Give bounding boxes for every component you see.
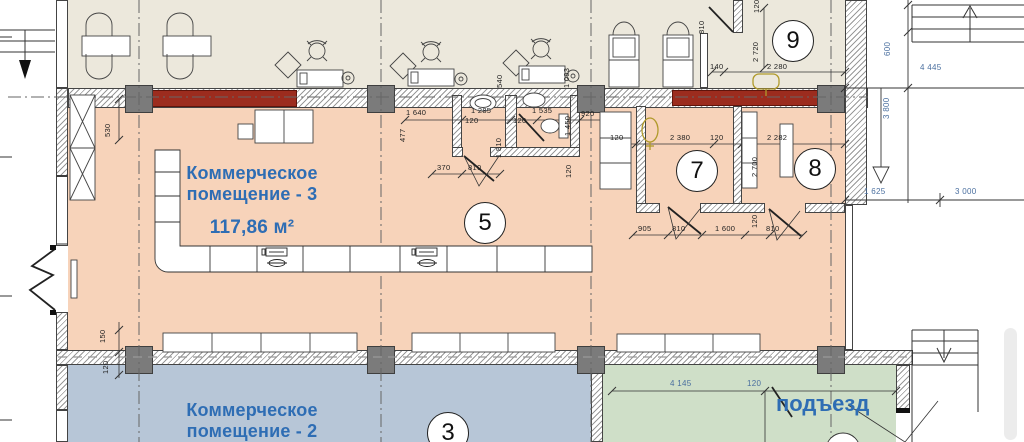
dimension-label: 120 xyxy=(751,215,759,228)
wall-left-3 xyxy=(56,365,68,410)
dimension-label: 120 xyxy=(710,134,723,142)
stairs-top-right xyxy=(912,5,1024,42)
scrollbar[interactable] xyxy=(1004,328,1017,440)
load-bearing-wall-right xyxy=(672,90,818,106)
room-number-9: 9 xyxy=(772,20,814,62)
entrance-label: подъезд xyxy=(776,391,869,417)
load-bearing-wall-left xyxy=(152,90,297,107)
dimension-label: 140 xyxy=(710,63,723,71)
dimension-label: 1 810 xyxy=(495,138,503,158)
room2-name-line2: помещение - 2 xyxy=(162,421,342,442)
dimension-label: 2 380 xyxy=(670,134,690,142)
room7-8-divider xyxy=(733,106,742,213)
column xyxy=(125,85,153,113)
dimension-label: 120 xyxy=(102,361,110,374)
room9-wall-stub xyxy=(733,0,743,33)
room2-label: Коммерческое помещение - 2 xyxy=(162,400,342,442)
office-area-floor xyxy=(68,0,845,90)
wall-bottom xyxy=(56,350,913,365)
dimension-label: 120 xyxy=(610,134,623,142)
dimension-label: 600 xyxy=(884,42,892,56)
wall-left-window xyxy=(56,176,68,246)
dimension-label: 4 445 xyxy=(920,64,942,72)
column xyxy=(817,85,845,113)
dimension-label: 2 280 xyxy=(767,63,787,71)
dimension-label: 1 640 xyxy=(406,109,426,117)
room3-name-line2: помещение - 3 xyxy=(162,184,342,205)
column xyxy=(817,346,845,374)
room7-8-wall-bottom-b xyxy=(700,203,765,213)
stairs-top-left xyxy=(0,30,55,79)
dimension-label: 810 xyxy=(698,21,706,34)
dimension-label: 1 285 xyxy=(471,107,491,115)
wall-left-1 xyxy=(56,88,68,176)
dimension-lines-right xyxy=(845,0,1024,207)
column xyxy=(367,346,395,374)
dimension-label: 3 800 xyxy=(883,97,891,119)
room7-8-wall-bottom-c xyxy=(805,203,845,213)
floor-plan: Коммерческое помещение - 3 117,86 м² Ком… xyxy=(0,0,1024,442)
dimension-label: 120 xyxy=(513,117,526,125)
column xyxy=(577,346,605,374)
dimension-label: 1 535 xyxy=(532,107,552,115)
room3-name-line1: Коммерческое xyxy=(162,163,342,184)
dimension-label: 370 xyxy=(437,164,450,172)
dimension-label: 2 282 xyxy=(767,134,787,142)
column xyxy=(125,346,153,374)
dimension-label: 150 xyxy=(99,330,107,343)
entrance-wall-right xyxy=(896,365,910,412)
room-number-5: 5 xyxy=(464,202,506,244)
room9-partition xyxy=(700,33,708,88)
dimension-label: 1 450 xyxy=(564,116,572,136)
dimension-label: 2 700 xyxy=(751,157,759,177)
dimension-label: 920 xyxy=(581,110,594,118)
stairs-bottom-right xyxy=(912,330,978,442)
wall-left-4 xyxy=(56,410,68,442)
room3-area: 117,86 м² xyxy=(162,217,342,238)
room-number-8: 8 xyxy=(794,148,836,190)
wall-left-upper xyxy=(56,0,68,88)
dimension-label: 1 600 xyxy=(715,225,735,233)
wall-left-2 xyxy=(56,312,68,350)
dimension-label: 120 xyxy=(465,117,478,125)
room3-label: Коммерческое помещение - 3 117,86 м² xyxy=(162,163,342,238)
wc-wall-bottom-a xyxy=(452,147,463,157)
dimension-label: 1 093 xyxy=(563,68,571,88)
dimension-label: 120 xyxy=(565,165,573,178)
dimension-label: 810 xyxy=(672,225,685,233)
entry-folding-door xyxy=(30,249,55,310)
room7-8-wall-bottom-a xyxy=(636,203,660,213)
dimension-label: 905 xyxy=(638,225,651,233)
dimension-label: 120 xyxy=(753,0,761,13)
wall-right-lower xyxy=(845,205,853,350)
dimension-label: 810 xyxy=(766,225,779,233)
room7-wall-left xyxy=(636,106,646,213)
dimension-label: 3 000 xyxy=(955,188,977,196)
room2-name-line1: Коммерческое xyxy=(162,400,342,421)
wc-wall-bottom-b xyxy=(490,147,580,157)
dimension-label: 530 xyxy=(104,124,112,137)
dimension-label: 4 145 xyxy=(670,380,692,388)
dimension-label: 1 625 xyxy=(864,188,886,196)
wall-right-upper xyxy=(845,0,867,205)
dimension-label: 810 xyxy=(468,164,481,172)
column xyxy=(367,85,395,113)
dimension-label: 540 xyxy=(496,75,504,88)
room-number-7: 7 xyxy=(676,150,718,192)
dimension-label: 2 720 xyxy=(752,42,760,62)
dimension-label: 120 xyxy=(747,380,761,388)
dimension-label: 477 xyxy=(399,129,407,142)
